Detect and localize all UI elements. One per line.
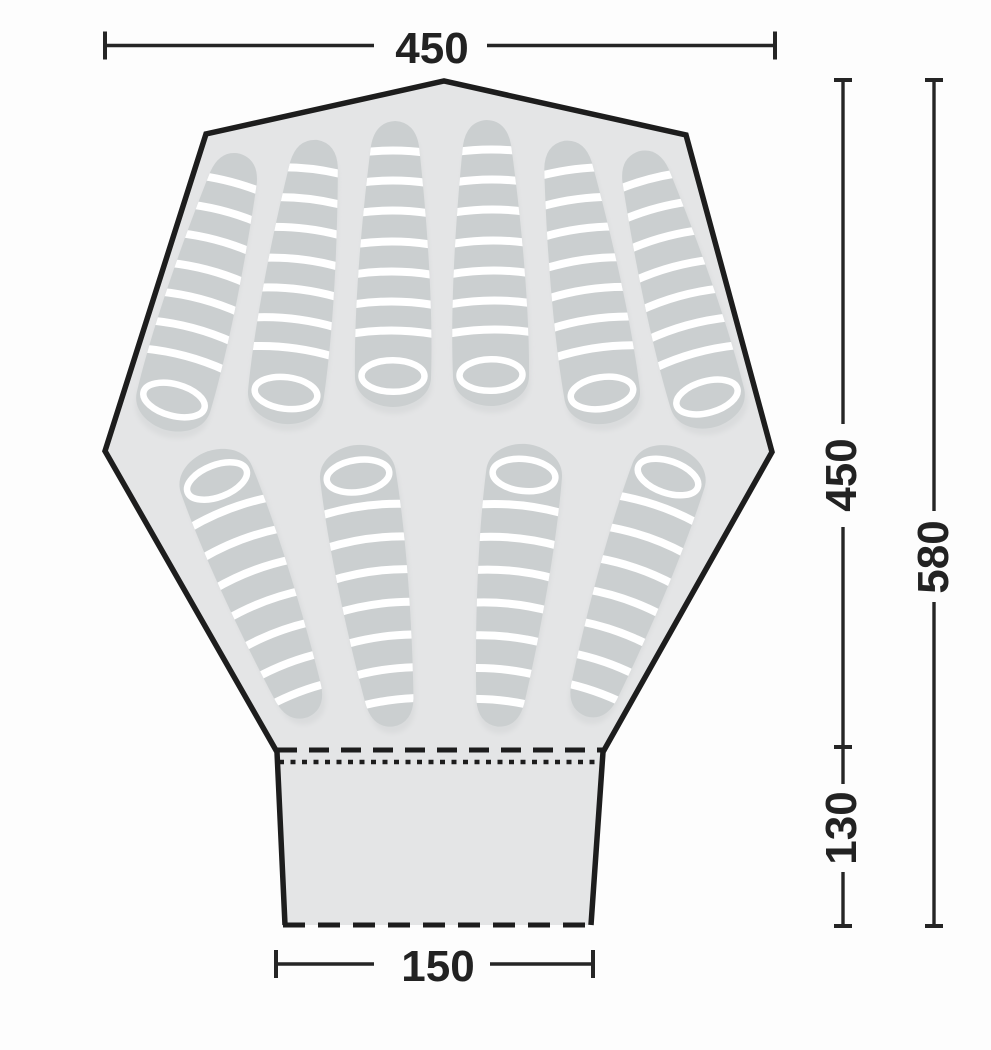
svg-text:450: 450 xyxy=(395,24,468,73)
svg-text:580: 580 xyxy=(909,520,958,593)
svg-text:130: 130 xyxy=(817,791,866,864)
svg-text:150: 150 xyxy=(401,942,474,991)
svg-text:450: 450 xyxy=(817,438,866,511)
